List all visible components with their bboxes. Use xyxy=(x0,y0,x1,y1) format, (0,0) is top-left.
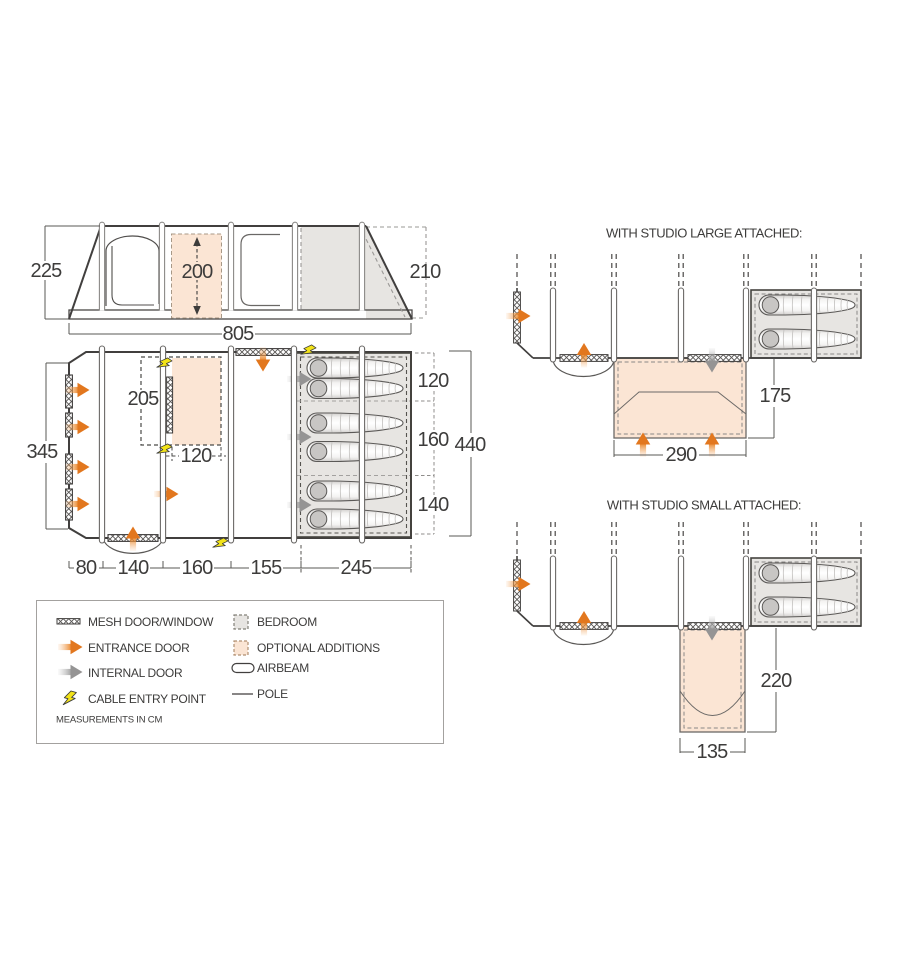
svg-text:175: 175 xyxy=(760,385,792,407)
svg-text:160: 160 xyxy=(182,557,214,579)
svg-text:805: 805 xyxy=(223,323,255,345)
svg-text:120: 120 xyxy=(418,370,450,392)
svg-text:155: 155 xyxy=(251,557,283,579)
svg-text:345: 345 xyxy=(27,441,59,463)
svg-text:MEASUREMENTS IN CM: MEASUREMENTS IN CM xyxy=(56,715,162,726)
svg-text:CABLE ENTRY POINT: CABLE ENTRY POINT xyxy=(88,692,207,706)
svg-text:220: 220 xyxy=(761,670,793,692)
svg-text:225: 225 xyxy=(31,260,63,282)
svg-text:245: 245 xyxy=(341,557,373,579)
svg-text:WITH STUDIO SMALL ATTACHED:: WITH STUDIO SMALL ATTACHED: xyxy=(607,498,801,513)
svg-text:200: 200 xyxy=(182,261,214,283)
svg-text:160: 160 xyxy=(418,429,450,451)
svg-text:BEDROOM: BEDROOM xyxy=(257,615,317,629)
svg-text:80: 80 xyxy=(76,557,97,579)
svg-text:140: 140 xyxy=(118,557,150,579)
svg-text:205: 205 xyxy=(128,388,160,410)
svg-text:120: 120 xyxy=(181,445,213,467)
svg-text:POLE: POLE xyxy=(257,687,288,701)
svg-text:290: 290 xyxy=(666,444,698,466)
svg-text:AIRBEAM: AIRBEAM xyxy=(257,661,309,675)
svg-text:WITH STUDIO LARGE ATTACHED:: WITH STUDIO LARGE ATTACHED: xyxy=(606,226,802,241)
svg-text:440: 440 xyxy=(455,434,487,456)
svg-text:135: 135 xyxy=(697,741,729,763)
svg-text:MESH DOOR/WINDOW: MESH DOOR/WINDOW xyxy=(88,615,214,629)
svg-text:OPTIONAL ADDITIONS: OPTIONAL ADDITIONS xyxy=(257,641,380,655)
svg-text:INTERNAL DOOR: INTERNAL DOOR xyxy=(88,666,183,680)
svg-text:210: 210 xyxy=(410,261,442,283)
svg-text:ENTRANCE DOOR: ENTRANCE DOOR xyxy=(88,641,190,655)
svg-text:140: 140 xyxy=(418,494,450,516)
